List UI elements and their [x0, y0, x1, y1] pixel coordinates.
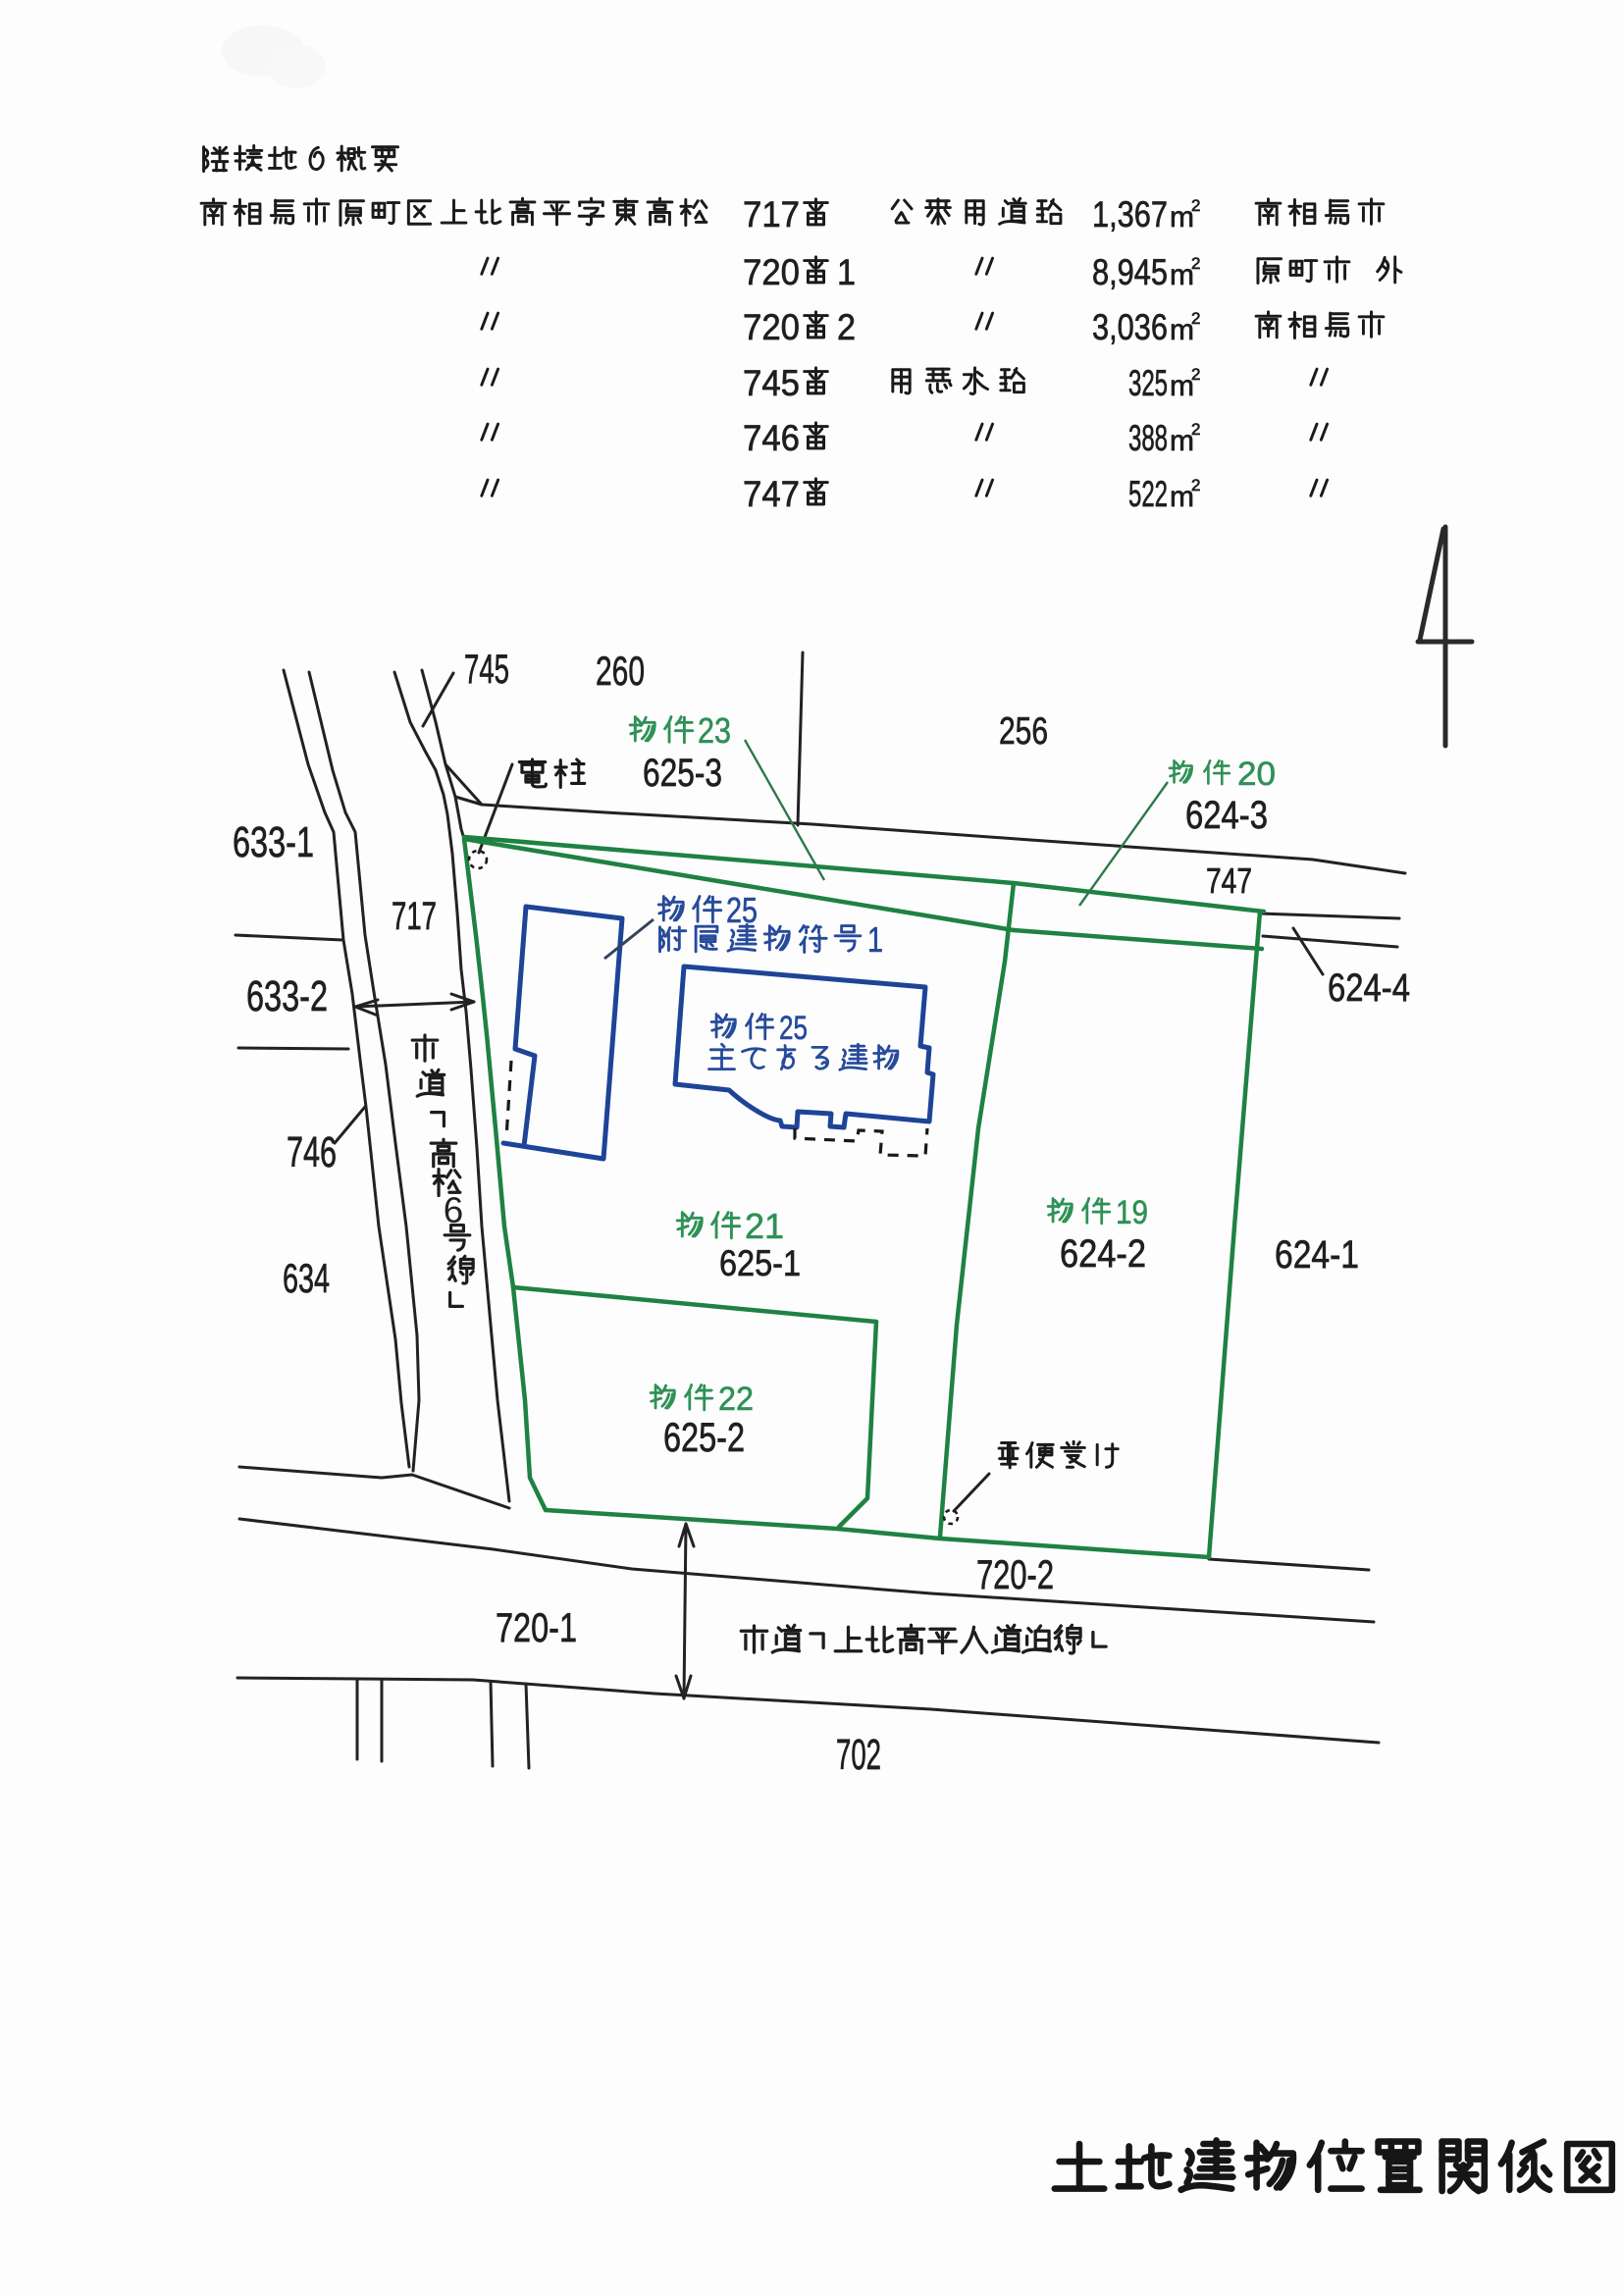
- svg-text:2: 2: [1191, 254, 1200, 273]
- svg-text:625-2: 625-2: [663, 1414, 745, 1460]
- svg-text:745: 745: [464, 646, 509, 692]
- svg-text:633-1: 633-1: [233, 819, 314, 866]
- svg-text:720: 720: [743, 306, 800, 347]
- svg-text:25: 25: [726, 890, 758, 930]
- svg-text:2: 2: [1191, 420, 1200, 439]
- svg-text:1: 1: [867, 919, 883, 960]
- svg-text:624-2: 624-2: [1060, 1231, 1146, 1276]
- svg-text:720: 720: [743, 251, 800, 292]
- svg-text:2: 2: [1191, 309, 1200, 328]
- svg-text:717: 717: [743, 193, 800, 235]
- svg-text:2: 2: [1191, 365, 1200, 384]
- svg-text:388: 388: [1128, 417, 1168, 458]
- svg-text:21: 21: [745, 1206, 784, 1246]
- svg-text:1,367: 1,367: [1092, 193, 1168, 235]
- svg-text:2: 2: [1191, 196, 1200, 215]
- svg-text:634: 634: [283, 1255, 330, 1301]
- svg-text:746: 746: [287, 1129, 337, 1176]
- svg-text:625-1: 625-1: [719, 1242, 801, 1283]
- svg-text:20: 20: [1237, 756, 1276, 793]
- svg-text:256: 256: [999, 710, 1048, 753]
- svg-text:624-1: 624-1: [1275, 1232, 1359, 1277]
- svg-text:522: 522: [1128, 473, 1168, 514]
- svg-text:23: 23: [698, 710, 731, 751]
- svg-text:624-4: 624-4: [1328, 965, 1410, 1010]
- svg-text:625-3: 625-3: [643, 751, 722, 795]
- svg-text:260: 260: [596, 648, 645, 694]
- svg-text:1: 1: [837, 251, 856, 292]
- svg-text:747: 747: [1206, 861, 1252, 901]
- svg-text:8,945: 8,945: [1092, 251, 1168, 292]
- svg-text:3,036: 3,036: [1092, 306, 1168, 347]
- svg-text:325: 325: [1128, 362, 1168, 403]
- svg-text:745: 745: [743, 362, 800, 403]
- svg-text:22: 22: [718, 1381, 754, 1418]
- svg-text:747: 747: [743, 473, 800, 514]
- svg-text:720-1: 720-1: [496, 1604, 577, 1650]
- svg-text:19: 19: [1116, 1194, 1148, 1231]
- svg-text:702: 702: [836, 1732, 881, 1779]
- svg-text:2: 2: [837, 306, 856, 347]
- svg-text:25: 25: [779, 1010, 808, 1047]
- svg-text:2: 2: [1191, 476, 1200, 495]
- svg-text:746: 746: [743, 417, 800, 458]
- svg-text:720-2: 720-2: [976, 1551, 1054, 1597]
- svg-text:717: 717: [392, 894, 437, 938]
- svg-text:633-2: 633-2: [246, 973, 328, 1020]
- svg-text:624-3: 624-3: [1185, 793, 1268, 837]
